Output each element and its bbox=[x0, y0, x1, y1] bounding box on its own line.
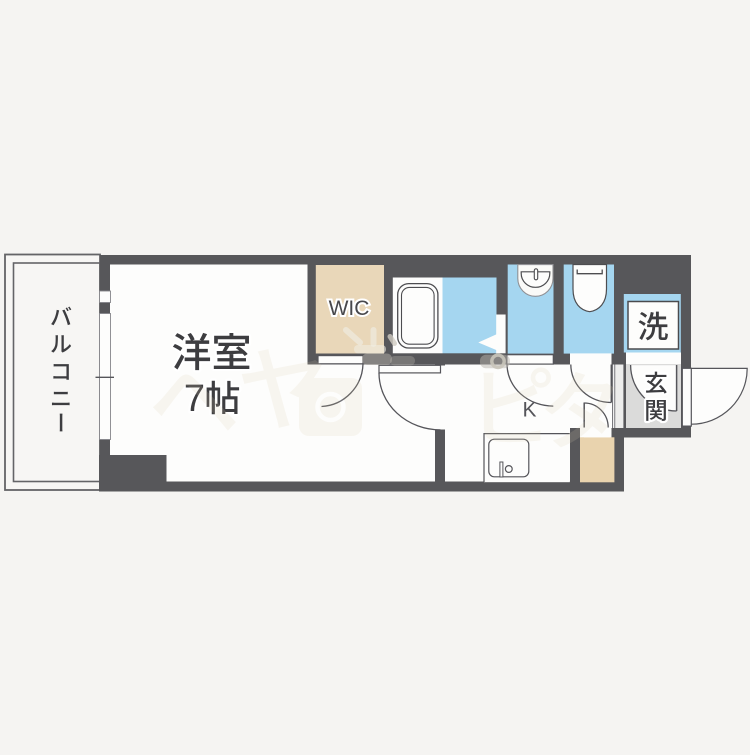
svg-text:WIC: WIC bbox=[329, 297, 370, 320]
svg-text:K: K bbox=[522, 399, 536, 422]
